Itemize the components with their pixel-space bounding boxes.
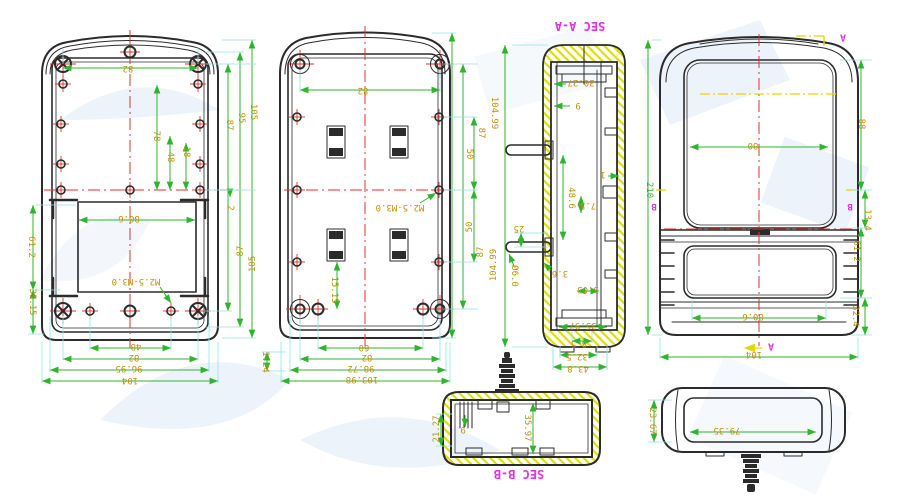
- antenna-connector: [495, 352, 519, 393]
- view-base-panel: [262, 26, 478, 383]
- antenna-connector: [741, 454, 761, 492]
- view-back-panel: [28, 30, 256, 383]
- drawing-canvas: 82784818879510528710561.231.1580.6M2.5-M…: [0, 0, 900, 500]
- drawing-linework: [0, 0, 900, 500]
